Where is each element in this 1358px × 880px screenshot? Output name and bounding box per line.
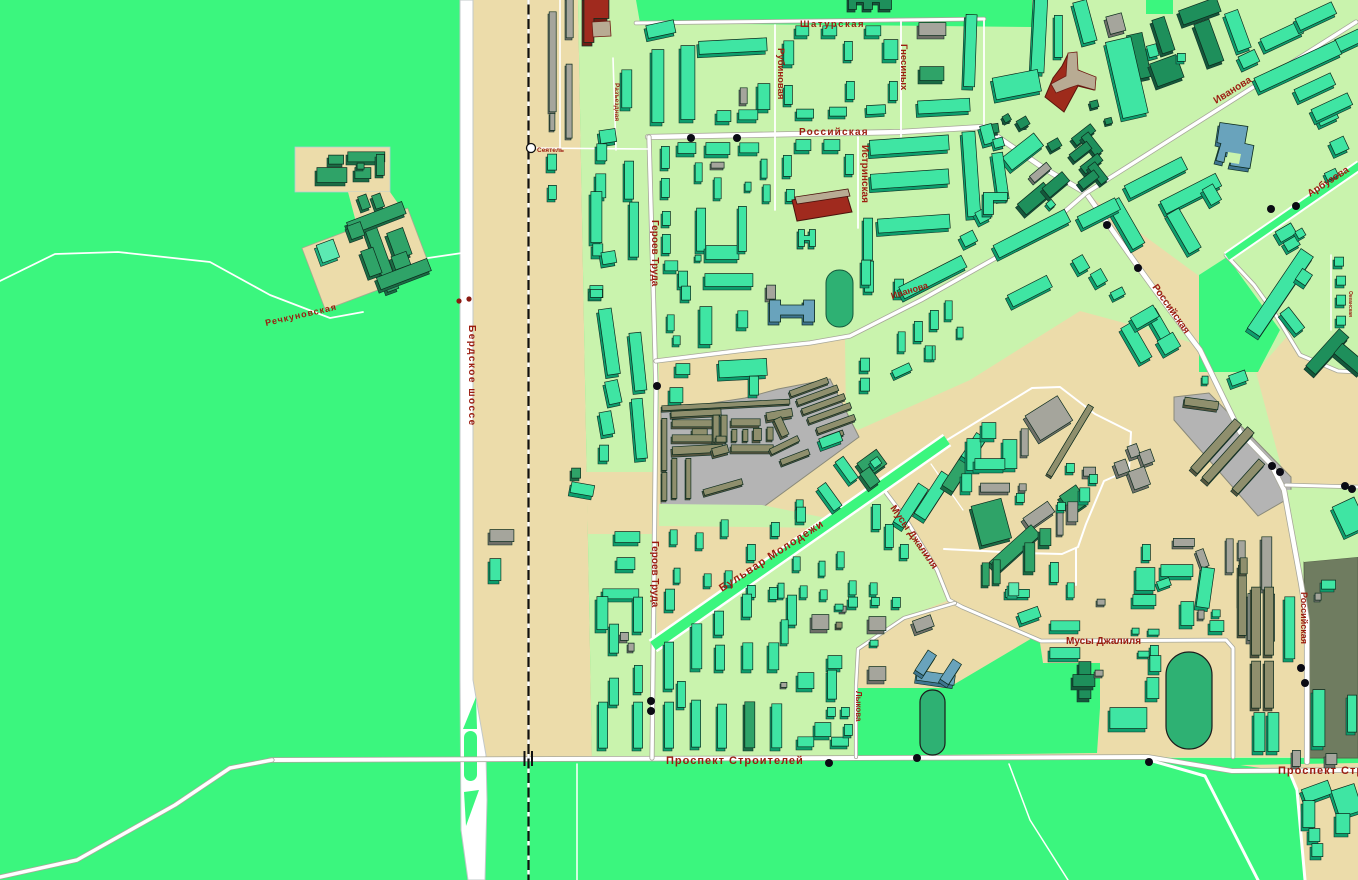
- svg-text:Бердское шоссе: Бердское шоссе: [466, 325, 477, 427]
- svg-text:Сеятель: Сеятель: [537, 147, 564, 154]
- svg-text:Проспект Стр: Проспект Стр: [1278, 765, 1358, 777]
- svg-text:Океанская: Океанская: [1347, 291, 1353, 317]
- svg-text:Российская: Российская: [799, 127, 869, 138]
- svg-text:Разъездная: Разъездная: [613, 83, 620, 121]
- svg-text:Проспект Строителей: Проспект Строителей: [666, 755, 804, 767]
- svg-text:Истринская: Истринская: [859, 145, 870, 203]
- svg-text:Героев Труда: Героев Труда: [649, 541, 660, 608]
- svg-text:Шатурская: Шатурская: [800, 19, 865, 30]
- svg-text:Российская: Российская: [1299, 592, 1309, 644]
- svg-text:Героев Труда: Героев Труда: [649, 220, 660, 287]
- svg-text:Гнесиных: Гнесиных: [898, 44, 909, 91]
- svg-text:Лыкова: Лыкова: [854, 691, 863, 722]
- svg-text:Мусы Джалиля: Мусы Джалиля: [1066, 636, 1141, 647]
- svg-text:Рубиновая: Рубиновая: [775, 48, 786, 99]
